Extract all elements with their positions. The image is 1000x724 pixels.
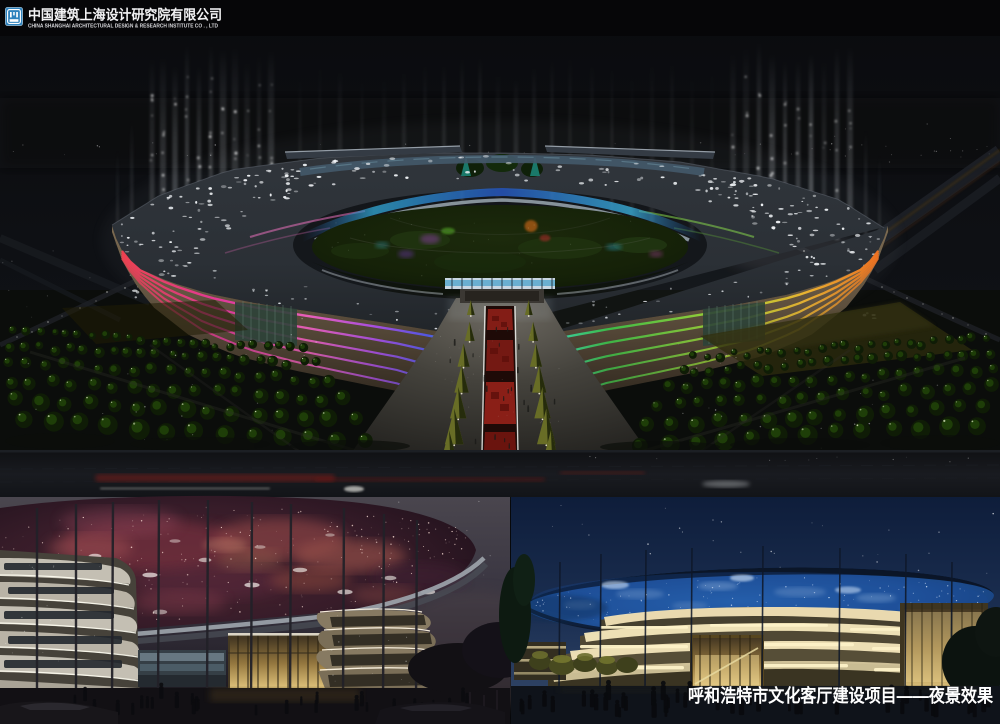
svg-text:CHINA SHANGHAI ARCHITECTURAL D: CHINA SHANGHAI ARCHITECTURAL DESIGN & RE… (28, 24, 218, 30)
svg-text:呼和浩特市文化客厅建设项目——夜景效果: 呼和浩特市文化客厅建设项目——夜景效果 (688, 685, 994, 706)
svg-text:中国建筑上海设计研究院有限公司: 中国建筑上海设计研究院有限公司 (28, 7, 222, 23)
